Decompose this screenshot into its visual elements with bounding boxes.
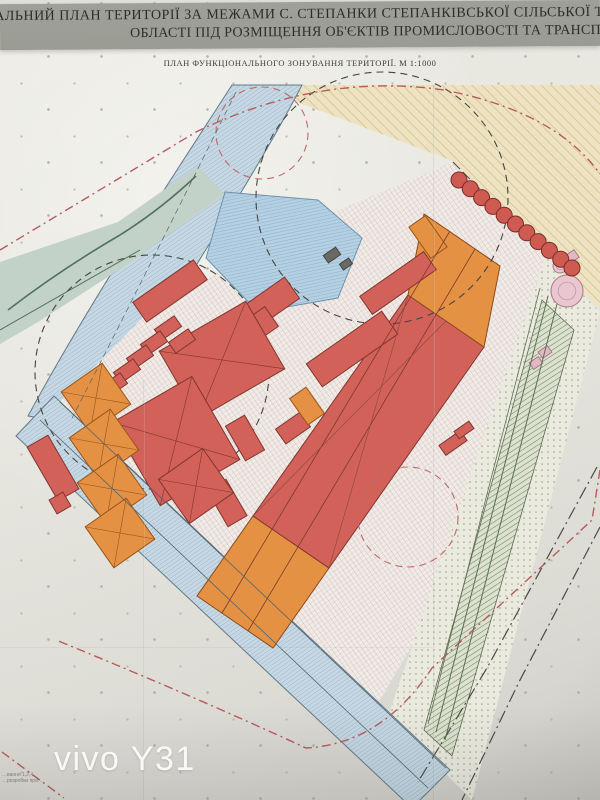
plan-title-line1: ТАЛЬНИЙ ПЛАН ТЕРИТОРІЇ ЗА МЕЖАМИ С. СТЕП… bbox=[0, 5, 600, 25]
tree-circle bbox=[564, 260, 580, 276]
plan-title-line2: ОБЛАСТІ ПІД РОЗМІЩЕННЯ ОБ'ЄКТІВ ПРОМИСЛО… bbox=[130, 23, 600, 42]
plan-subtitle: ПЛАН ФУНКЦІОНАЛЬНОГО ЗОНУВАННЯ ТЕРИТОРІЇ… bbox=[0, 58, 600, 68]
photo-of-zoning-plan: ТАЛЬНИЙ ПЛАН ТЕРИТОРІЇ ЗА МЕЖАМИ С. СТЕП… bbox=[0, 0, 600, 800]
footnote-line2: …розробки про… bbox=[2, 778, 43, 784]
zoning-plan-drawing bbox=[0, 0, 600, 800]
water-tank bbox=[551, 275, 583, 307]
corner-footnote: …вання 1,2,4 …розробки про… bbox=[2, 772, 43, 784]
title-band: ТАЛЬНИЙ ПЛАН ТЕРИТОРІЇ ЗА МЕЖАМИ С. СТЕП… bbox=[0, 0, 600, 50]
camera-watermark: vivo Y31 bbox=[54, 740, 196, 779]
